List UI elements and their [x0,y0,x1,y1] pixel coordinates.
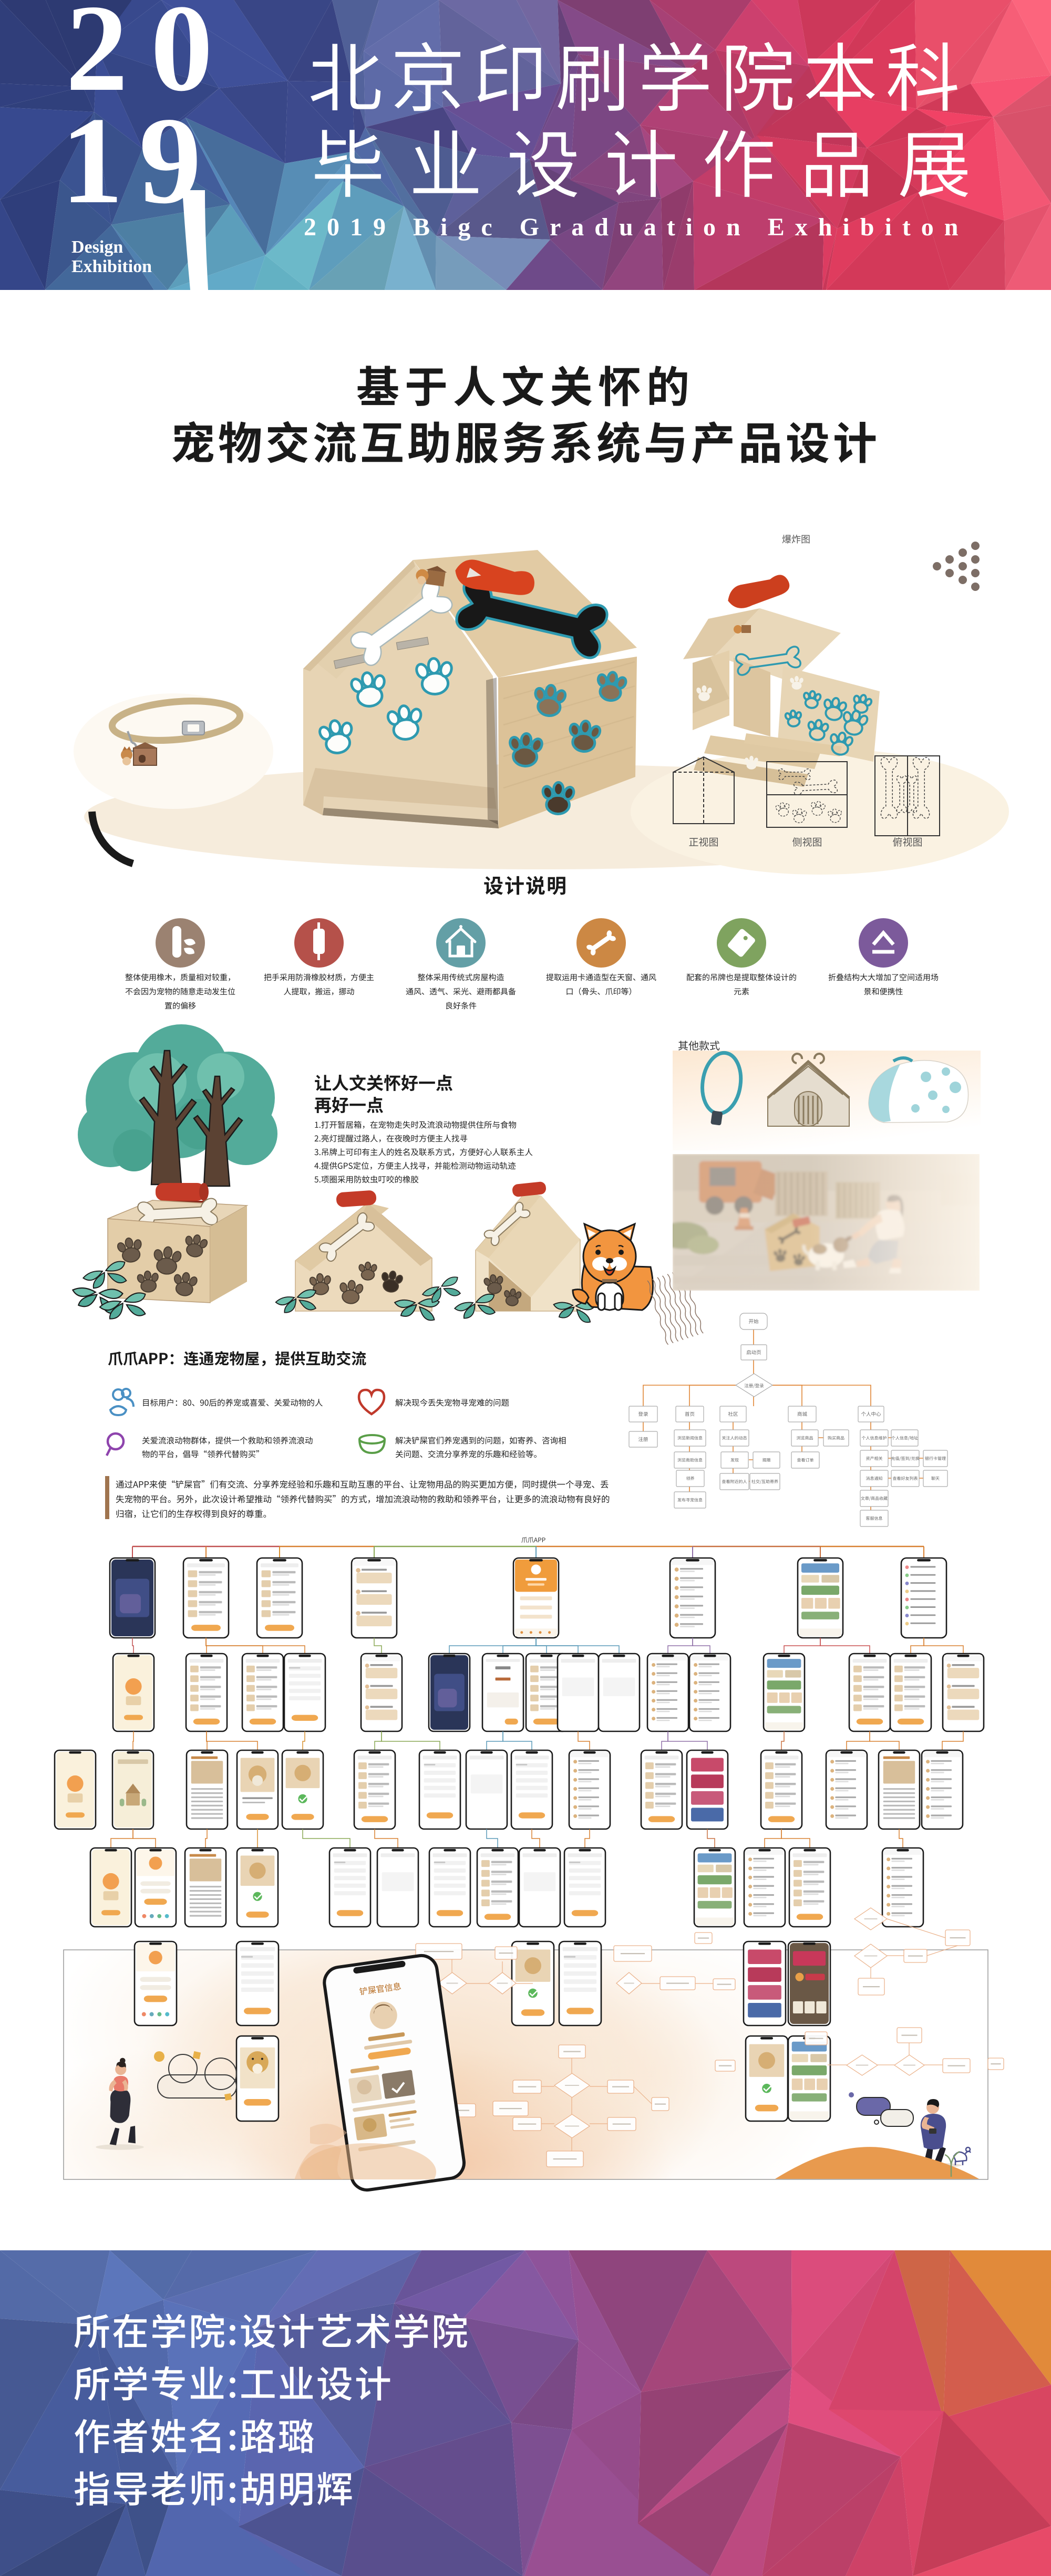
svg-text:2019 Bigc Graduation Exhibiton: 2019 Bigc Graduation Exhibiton [304,213,968,241]
svg-text:Design: Design [71,237,123,257]
svg-text:Exhibition: Exhibition [71,257,152,276]
